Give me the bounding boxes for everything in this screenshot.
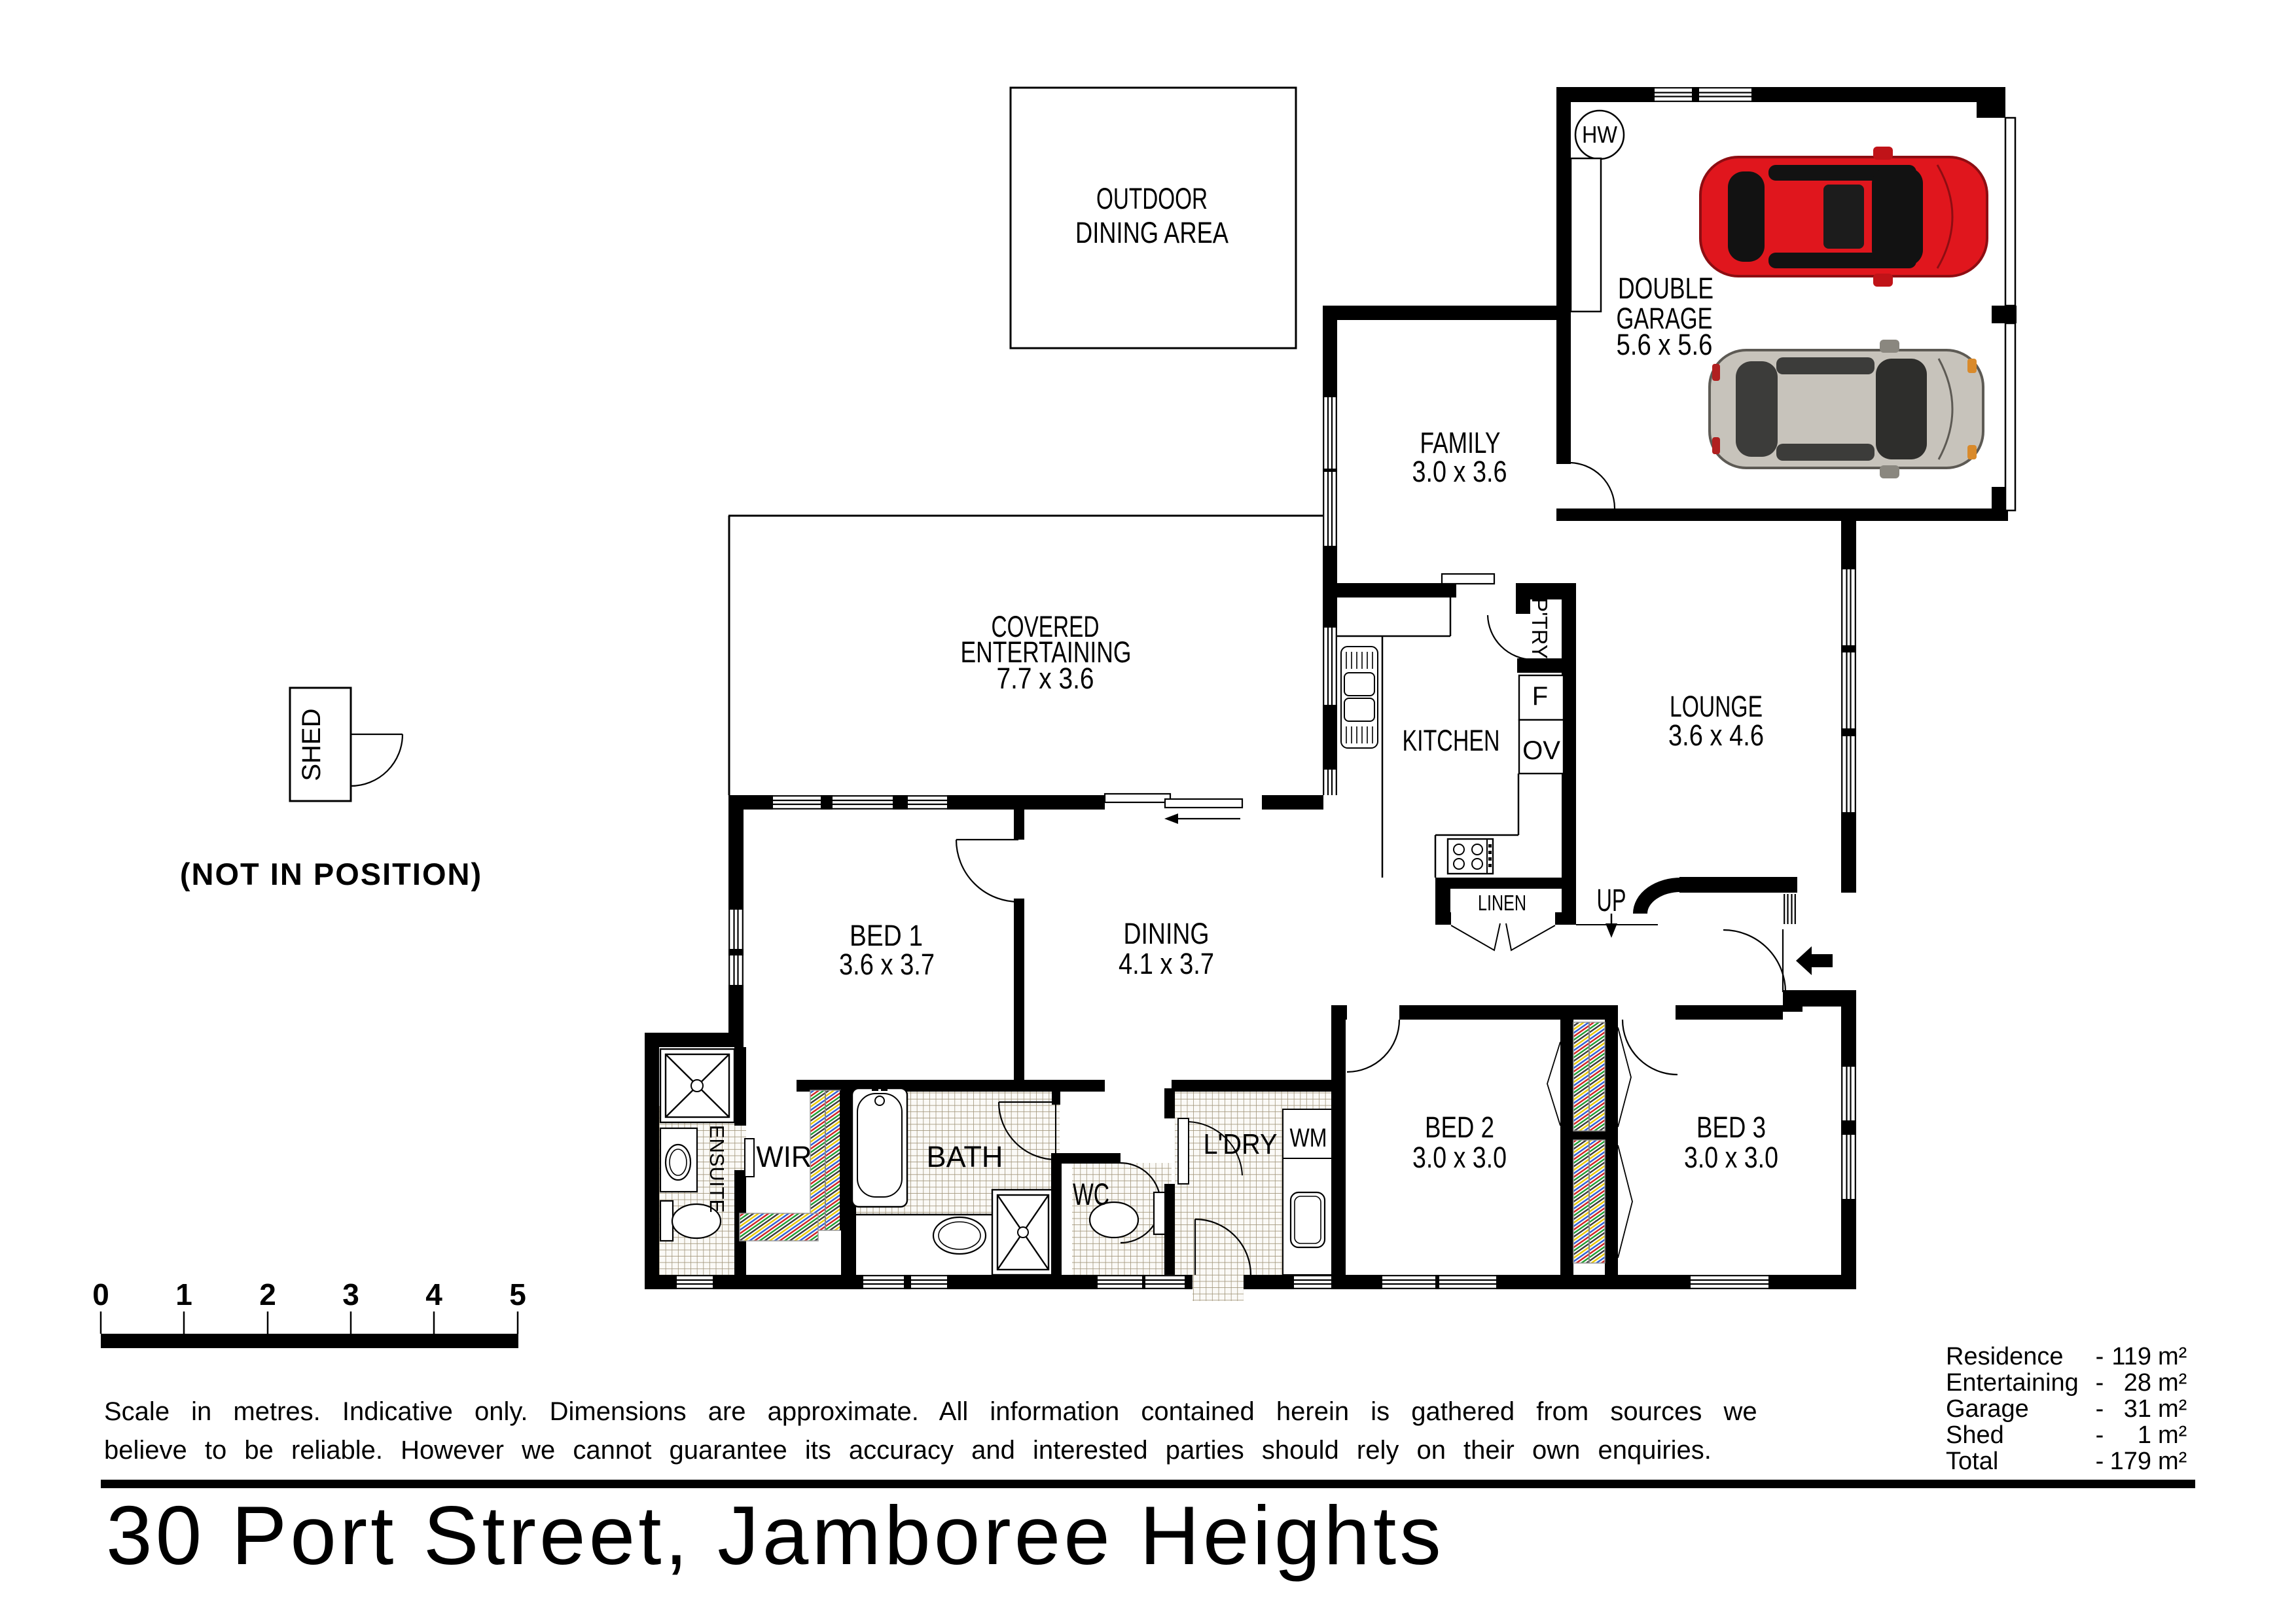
svg-text:BED 2: BED 2: [1425, 1111, 1494, 1144]
svg-text:3.0 x 3.0: 3.0 x 3.0: [1412, 1141, 1507, 1174]
svg-text:Garage: Garage: [1946, 1395, 2029, 1423]
svg-text:HW: HW: [1582, 121, 1617, 148]
svg-text:m²: m²: [2158, 1421, 2187, 1449]
svg-text:DOUBLE: DOUBLE: [1618, 272, 1713, 305]
svg-text:5.6 x 5.6: 5.6 x 5.6: [1617, 328, 1713, 361]
svg-text:30 Port Street, Jamboree Heigh: 30 Port Street, Jamboree Heights: [106, 1489, 1444, 1582]
svg-text:WC: WC: [1073, 1177, 1109, 1211]
svg-text:119: 119: [2111, 1343, 2151, 1370]
svg-text:Total: Total: [1946, 1448, 1998, 1475]
svg-text:believe to be reliable. Howeve: believe to be reliable. However we canno…: [104, 1436, 1712, 1465]
svg-text:31: 31: [2124, 1395, 2151, 1423]
svg-text:OV: OV: [1522, 736, 1560, 765]
svg-text:3.0 x 3.6: 3.0 x 3.6: [1412, 455, 1507, 488]
svg-text:WIR: WIR: [757, 1140, 812, 1173]
svg-text:m²: m²: [2158, 1395, 2187, 1423]
svg-text:3.6 x 4.6: 3.6 x 4.6: [1668, 719, 1764, 752]
svg-text:UP: UP: [1597, 883, 1626, 918]
svg-text:OUTDOOR: OUTDOOR: [1096, 182, 1208, 215]
svg-text:-: -: [2096, 1369, 2104, 1397]
svg-text:4: 4: [425, 1277, 442, 1311]
svg-text:4.1 x 3.7: 4.1 x 3.7: [1119, 947, 1214, 980]
svg-text:ENSUITE: ENSUITE: [706, 1125, 728, 1213]
svg-text:2: 2: [259, 1277, 276, 1311]
svg-text:F: F: [1532, 682, 1548, 711]
svg-text:m²: m²: [2158, 1369, 2187, 1397]
svg-text:5: 5: [509, 1277, 526, 1311]
svg-text:3.0 x 3.0: 3.0 x 3.0: [1684, 1141, 1778, 1174]
svg-text:0: 0: [92, 1277, 109, 1311]
svg-text:L'DRY: L'DRY: [1204, 1128, 1278, 1160]
svg-text:DINING: DINING: [1124, 917, 1210, 950]
svg-text:DINING AREA: DINING AREA: [1075, 216, 1229, 249]
svg-text:(NOT IN POSITION): (NOT IN POSITION): [180, 857, 482, 891]
svg-text:m²: m²: [2158, 1343, 2187, 1370]
svg-text:P'TRY: P'TRY: [1528, 597, 1552, 659]
svg-text:-: -: [2096, 1395, 2104, 1423]
svg-text:1: 1: [175, 1277, 192, 1311]
svg-text:BED 3: BED 3: [1696, 1111, 1766, 1144]
svg-text:3: 3: [342, 1277, 359, 1311]
svg-text:KITCHEN: KITCHEN: [1403, 724, 1500, 757]
svg-text:SHED: SHED: [297, 708, 326, 781]
svg-text:28: 28: [2124, 1369, 2151, 1397]
svg-text:Residence: Residence: [1946, 1343, 2064, 1370]
svg-text:LINEN: LINEN: [1478, 891, 1526, 915]
svg-text:-: -: [2096, 1448, 2104, 1475]
svg-text:WM: WM: [1290, 1124, 1327, 1152]
svg-text:-: -: [2096, 1421, 2104, 1449]
svg-text:m²: m²: [2158, 1448, 2187, 1475]
svg-text:Entertaining: Entertaining: [1946, 1369, 2079, 1397]
svg-text:179: 179: [2110, 1448, 2151, 1475]
svg-text:7.7 x 3.6: 7.7 x 3.6: [997, 662, 1094, 695]
svg-text:Scale in metres. Indicative on: Scale in metres. Indicative only. Dimens…: [104, 1397, 1757, 1426]
svg-text:3.6 x 3.7: 3.6 x 3.7: [839, 948, 935, 981]
svg-text:Shed: Shed: [1946, 1421, 2004, 1449]
svg-text:BATH: BATH: [927, 1140, 1003, 1173]
svg-text:-: -: [2096, 1343, 2104, 1370]
svg-text:1: 1: [2138, 1421, 2151, 1449]
